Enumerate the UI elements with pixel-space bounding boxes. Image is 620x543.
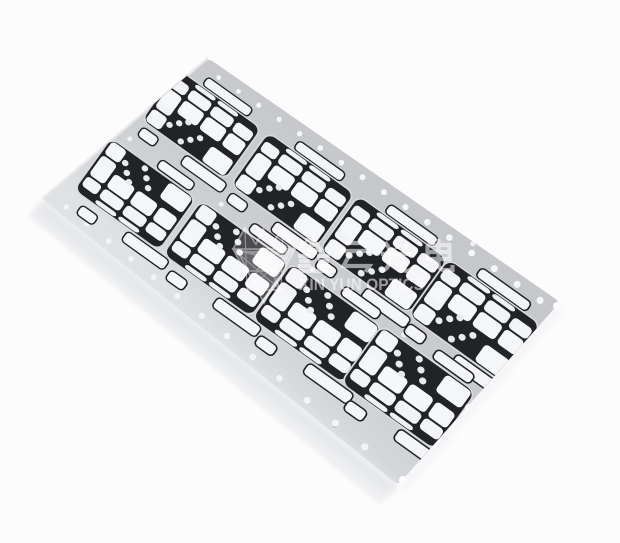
svg-text:XIN YUN OPTICS: XIN YUN OPTICS <box>299 275 424 294</box>
